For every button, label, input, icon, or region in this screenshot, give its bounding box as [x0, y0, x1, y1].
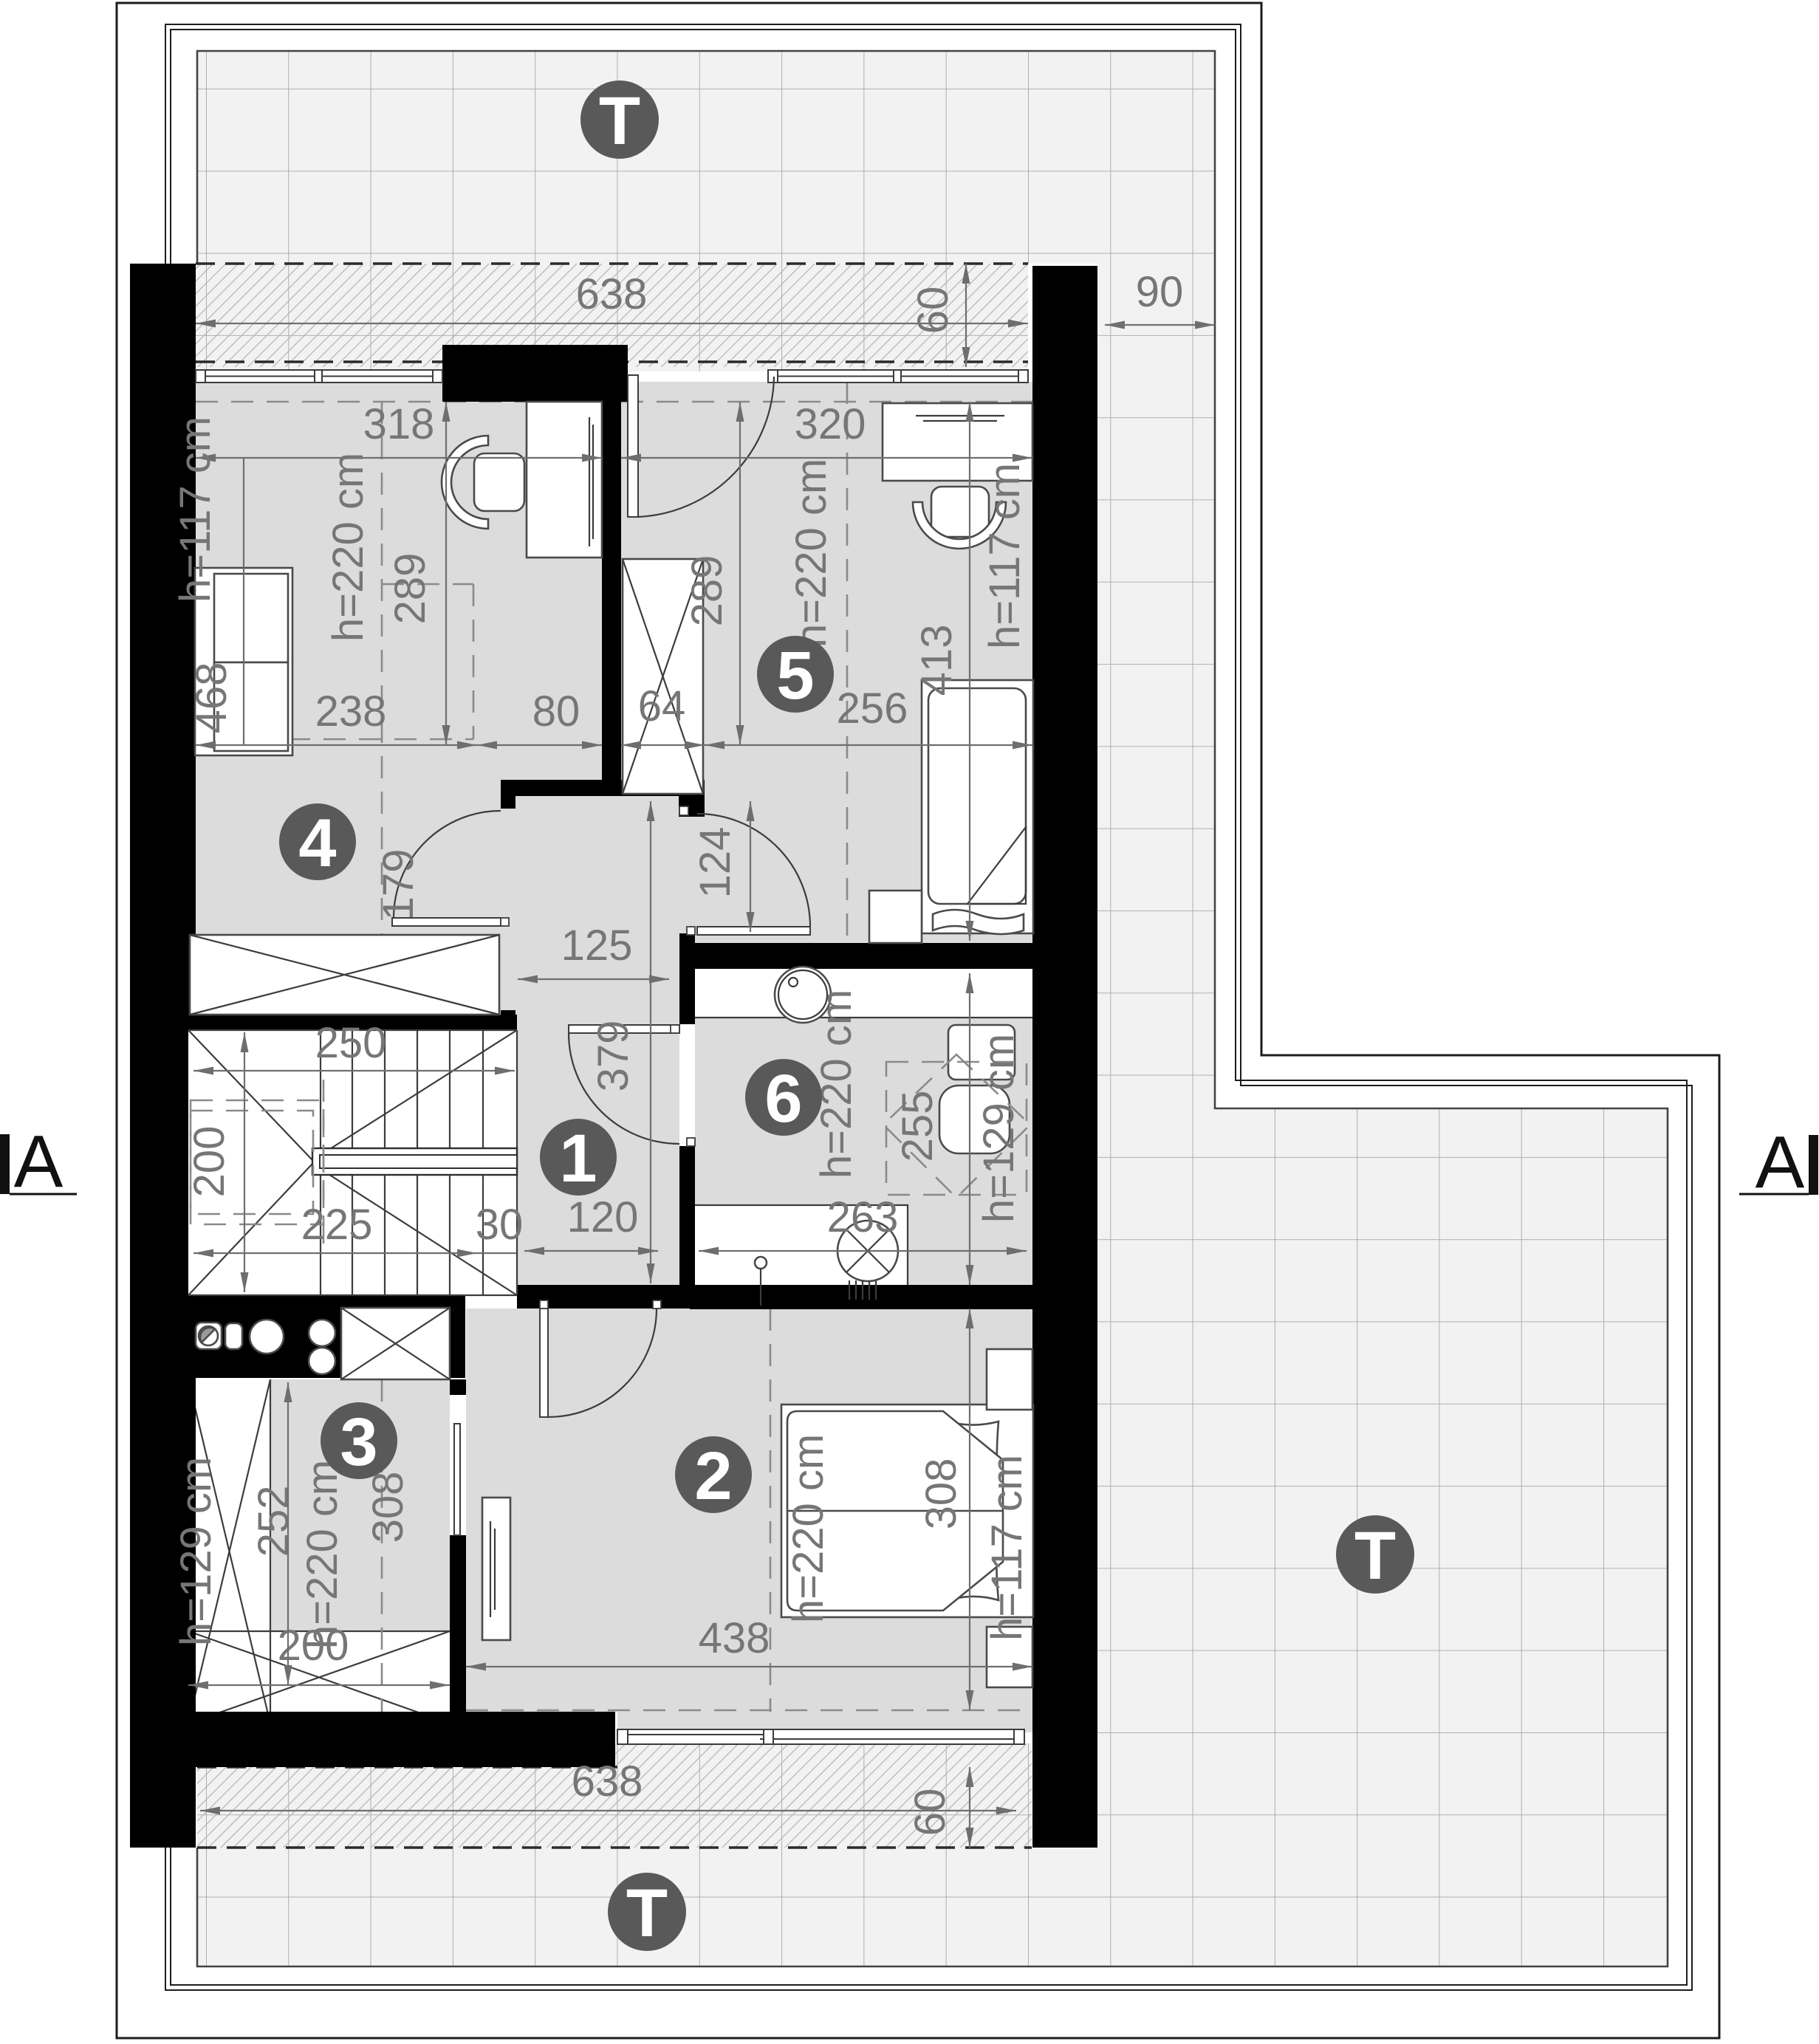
svg-text:3: 3: [340, 1405, 377, 1480]
svg-text:125: 125: [561, 922, 633, 970]
svg-text:308: 308: [364, 1472, 412, 1543]
svg-text:124: 124: [691, 827, 739, 899]
svg-text:h=129 cm: h=129 cm: [975, 1034, 1023, 1223]
svg-text:h=220 cm: h=220 cm: [324, 453, 372, 642]
svg-text:h=220 cm: h=220 cm: [298, 1460, 346, 1649]
svg-text:225: 225: [301, 1201, 373, 1249]
svg-text:h=220 cm: h=220 cm: [784, 1434, 832, 1623]
svg-text:A: A: [1755, 1121, 1805, 1204]
svg-text:318: 318: [363, 400, 435, 448]
svg-text:379: 379: [589, 1021, 637, 1092]
svg-text:2: 2: [694, 1438, 732, 1514]
svg-text:1: 1: [559, 1121, 597, 1196]
svg-text:638: 638: [576, 270, 648, 318]
svg-text:h=117 cm: h=117 cm: [171, 416, 219, 603]
svg-text:90: 90: [1136, 268, 1184, 316]
svg-text:252: 252: [250, 1486, 298, 1557]
svg-text:438: 438: [699, 1614, 770, 1662]
svg-text:h=129 cm: h=129 cm: [172, 1457, 220, 1646]
svg-text:289: 289: [683, 555, 731, 627]
svg-text:60: 60: [906, 1788, 954, 1836]
svg-text:T: T: [599, 83, 640, 159]
svg-text:468: 468: [188, 662, 236, 734]
svg-text:64: 64: [638, 682, 686, 730]
svg-text:263: 263: [827, 1193, 899, 1241]
svg-text:4: 4: [298, 806, 336, 881]
svg-text:h=117 cm: h=117 cm: [981, 463, 1029, 649]
svg-text:638: 638: [572, 1757, 643, 1805]
svg-text:T: T: [626, 1876, 668, 1951]
svg-text:256: 256: [837, 685, 908, 733]
svg-text:413: 413: [913, 625, 961, 696]
svg-text:120: 120: [567, 1193, 639, 1241]
svg-text:h=220 cm: h=220 cm: [787, 459, 835, 648]
svg-text:T: T: [1354, 1518, 1396, 1594]
svg-text:6: 6: [764, 1061, 802, 1136]
svg-text:238: 238: [315, 687, 387, 735]
svg-text:A: A: [14, 1120, 64, 1203]
svg-text:320: 320: [795, 400, 866, 448]
svg-text:250: 250: [315, 1019, 387, 1067]
svg-text:h=117 cm: h=117 cm: [983, 1455, 1031, 1641]
svg-text:200: 200: [185, 1126, 233, 1198]
svg-text:179: 179: [374, 849, 422, 921]
svg-text:30: 30: [476, 1201, 524, 1249]
svg-text:5: 5: [776, 638, 814, 713]
svg-text:289: 289: [386, 553, 434, 625]
svg-text:308: 308: [917, 1458, 965, 1530]
svg-text:255: 255: [894, 1091, 942, 1162]
svg-text:60: 60: [909, 287, 957, 335]
svg-text:80: 80: [532, 687, 580, 735]
